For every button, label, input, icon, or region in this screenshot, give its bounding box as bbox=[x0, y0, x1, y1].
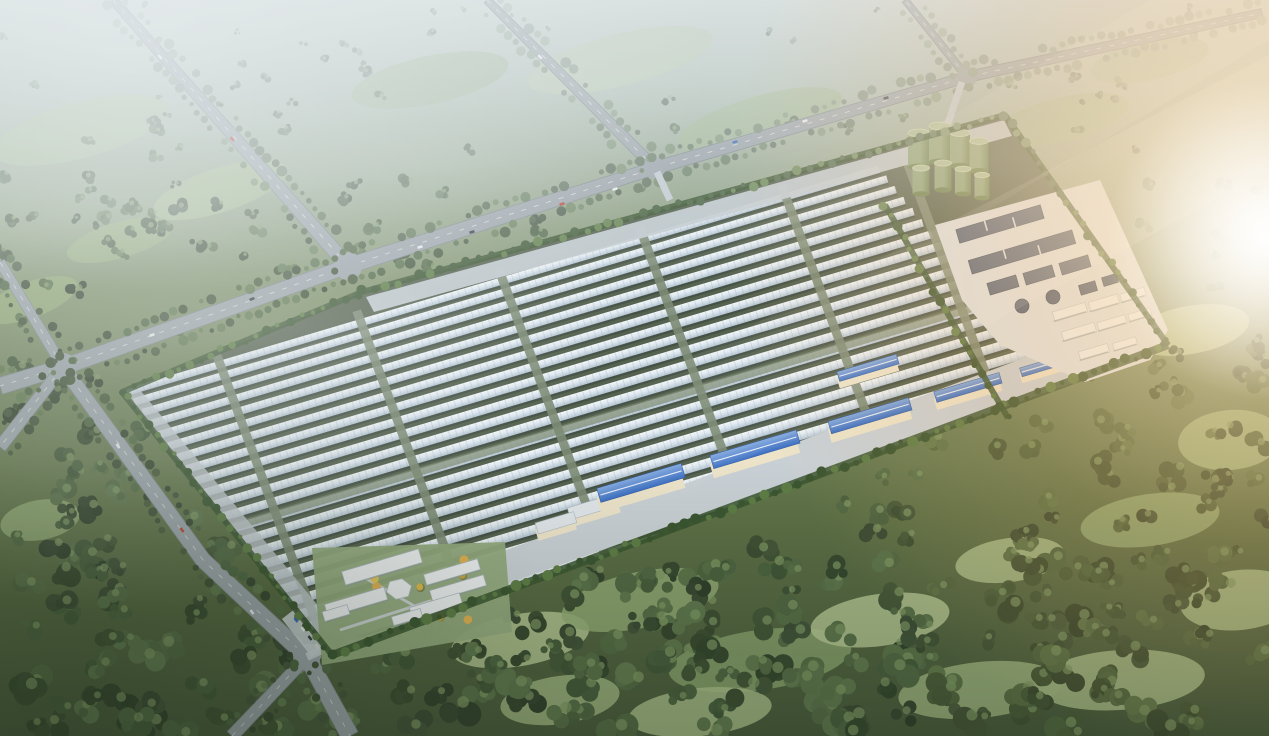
atmosphere bbox=[0, 0, 1269, 736]
sun-flare-core bbox=[0, 0, 1269, 736]
solar-greenhouse-campus-rendering bbox=[0, 0, 1269, 736]
aerial-rendering-viewport bbox=[0, 0, 1269, 736]
